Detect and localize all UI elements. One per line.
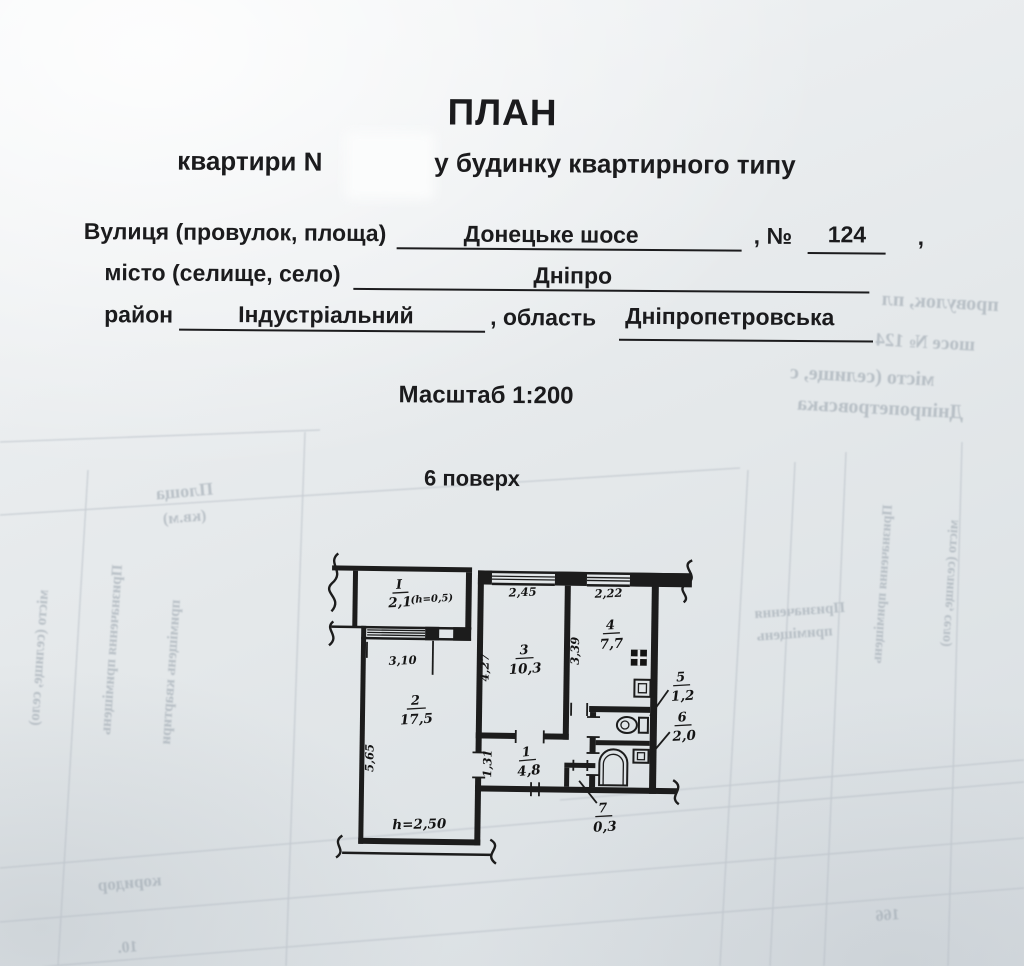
svg-text:1: 1 bbox=[521, 745, 531, 761]
district-value: Індустріальний bbox=[238, 301, 414, 329]
city-underline bbox=[353, 288, 869, 294]
dim-ceiling-height: h=2,50 bbox=[392, 816, 447, 833]
svg-text:2,0: 2,0 bbox=[671, 728, 697, 745]
bathtub-icon bbox=[599, 749, 627, 785]
dim-kitchen-side: 3,39 bbox=[568, 637, 582, 665]
toilet-icon bbox=[617, 717, 648, 733]
floor-label: 6 поверх bbox=[424, 465, 520, 492]
street-value: Донецьке шосе bbox=[464, 221, 639, 249]
dim-balcony-window: 3,10 bbox=[388, 653, 417, 668]
svg-text:4: 4 bbox=[606, 618, 616, 633]
region-label: , область bbox=[490, 304, 596, 332]
page-title: ПЛАН bbox=[2, 88, 1002, 137]
scale-label: Масштаб 1:200 bbox=[399, 381, 574, 410]
redacted-apartment-number bbox=[345, 132, 434, 200]
floor-plan: I 2,1 (h=0,5) 2 17,5 3 10,3 4 7,7 5 1,2 … bbox=[316, 545, 721, 891]
dim-kitchen-window: 2,22 bbox=[593, 586, 623, 601]
room-label-3: 3 10,3 bbox=[507, 642, 542, 678]
city-value: Дніпро bbox=[533, 262, 612, 290]
room-number: I bbox=[395, 577, 404, 592]
kitchen-sink-icon bbox=[634, 680, 650, 697]
region-underline bbox=[619, 339, 873, 343]
svg-text:2: 2 bbox=[409, 693, 420, 709]
room-label-5: 5 1,2 bbox=[670, 670, 695, 705]
house-number-label: , № bbox=[754, 223, 793, 250]
district-underline bbox=[179, 329, 485, 333]
subtitle-suffix: у будинку квартирного типу bbox=[434, 147, 796, 181]
svg-text:5: 5 bbox=[676, 670, 686, 685]
house-number-underline bbox=[808, 252, 886, 255]
dim-room2-side: 5,65 bbox=[362, 744, 376, 772]
room-label-2: 2 17,5 bbox=[399, 693, 434, 729]
svg-text:7,7: 7,7 bbox=[599, 636, 624, 653]
washbasin-icon bbox=[633, 750, 648, 763]
svg-text:7: 7 bbox=[598, 801, 608, 816]
room-area: 2,1 bbox=[387, 594, 412, 611]
street-underline bbox=[397, 247, 742, 252]
room-label-6: 6 2,0 bbox=[670, 710, 697, 745]
city-label: місто (селище, село) bbox=[104, 259, 340, 288]
svg-text:6: 6 bbox=[677, 710, 687, 725]
street-label: Вулиця (провулок, площа) bbox=[84, 218, 387, 247]
scanned-floor-plan-page: провулок, пл шосе № 124 місто (селище, с… bbox=[0, 0, 1024, 966]
region-value: Дніпропетровська bbox=[625, 303, 834, 331]
svg-text:17,5: 17,5 bbox=[400, 711, 434, 729]
room-label-4: 4 7,7 bbox=[598, 618, 624, 653]
dim-room3-side: 4,27 bbox=[478, 653, 492, 681]
svg-text:3: 3 bbox=[519, 643, 529, 658]
dim-room3-window: 2,45 bbox=[507, 585, 537, 600]
stove-icon bbox=[631, 650, 647, 666]
trailing-comma: , bbox=[918, 224, 925, 251]
room-note: (h=0,5) bbox=[410, 593, 453, 606]
room-label-balcony: I 2,1 (h=0,5) bbox=[386, 575, 454, 612]
svg-text:1,2: 1,2 bbox=[671, 688, 695, 705]
room-label-7: 7 0,3 bbox=[592, 801, 617, 836]
svg-text:4,8: 4,8 bbox=[517, 762, 542, 780]
house-number-value: 124 bbox=[828, 221, 867, 248]
walls bbox=[328, 565, 692, 858]
dim-hall-width: 1,31 bbox=[480, 749, 494, 777]
room-label-hall: 1 4,8 bbox=[515, 744, 542, 780]
svg-text:10,3: 10,3 bbox=[508, 660, 542, 678]
subtitle-prefix: квартири N bbox=[177, 146, 322, 178]
district-label: район bbox=[104, 301, 173, 328]
svg-text:0,3: 0,3 bbox=[593, 818, 617, 835]
dimension-labels: 3,10 2,45 2,22 5,65 4,27 3,39 1,31 h=2,5… bbox=[361, 582, 623, 836]
